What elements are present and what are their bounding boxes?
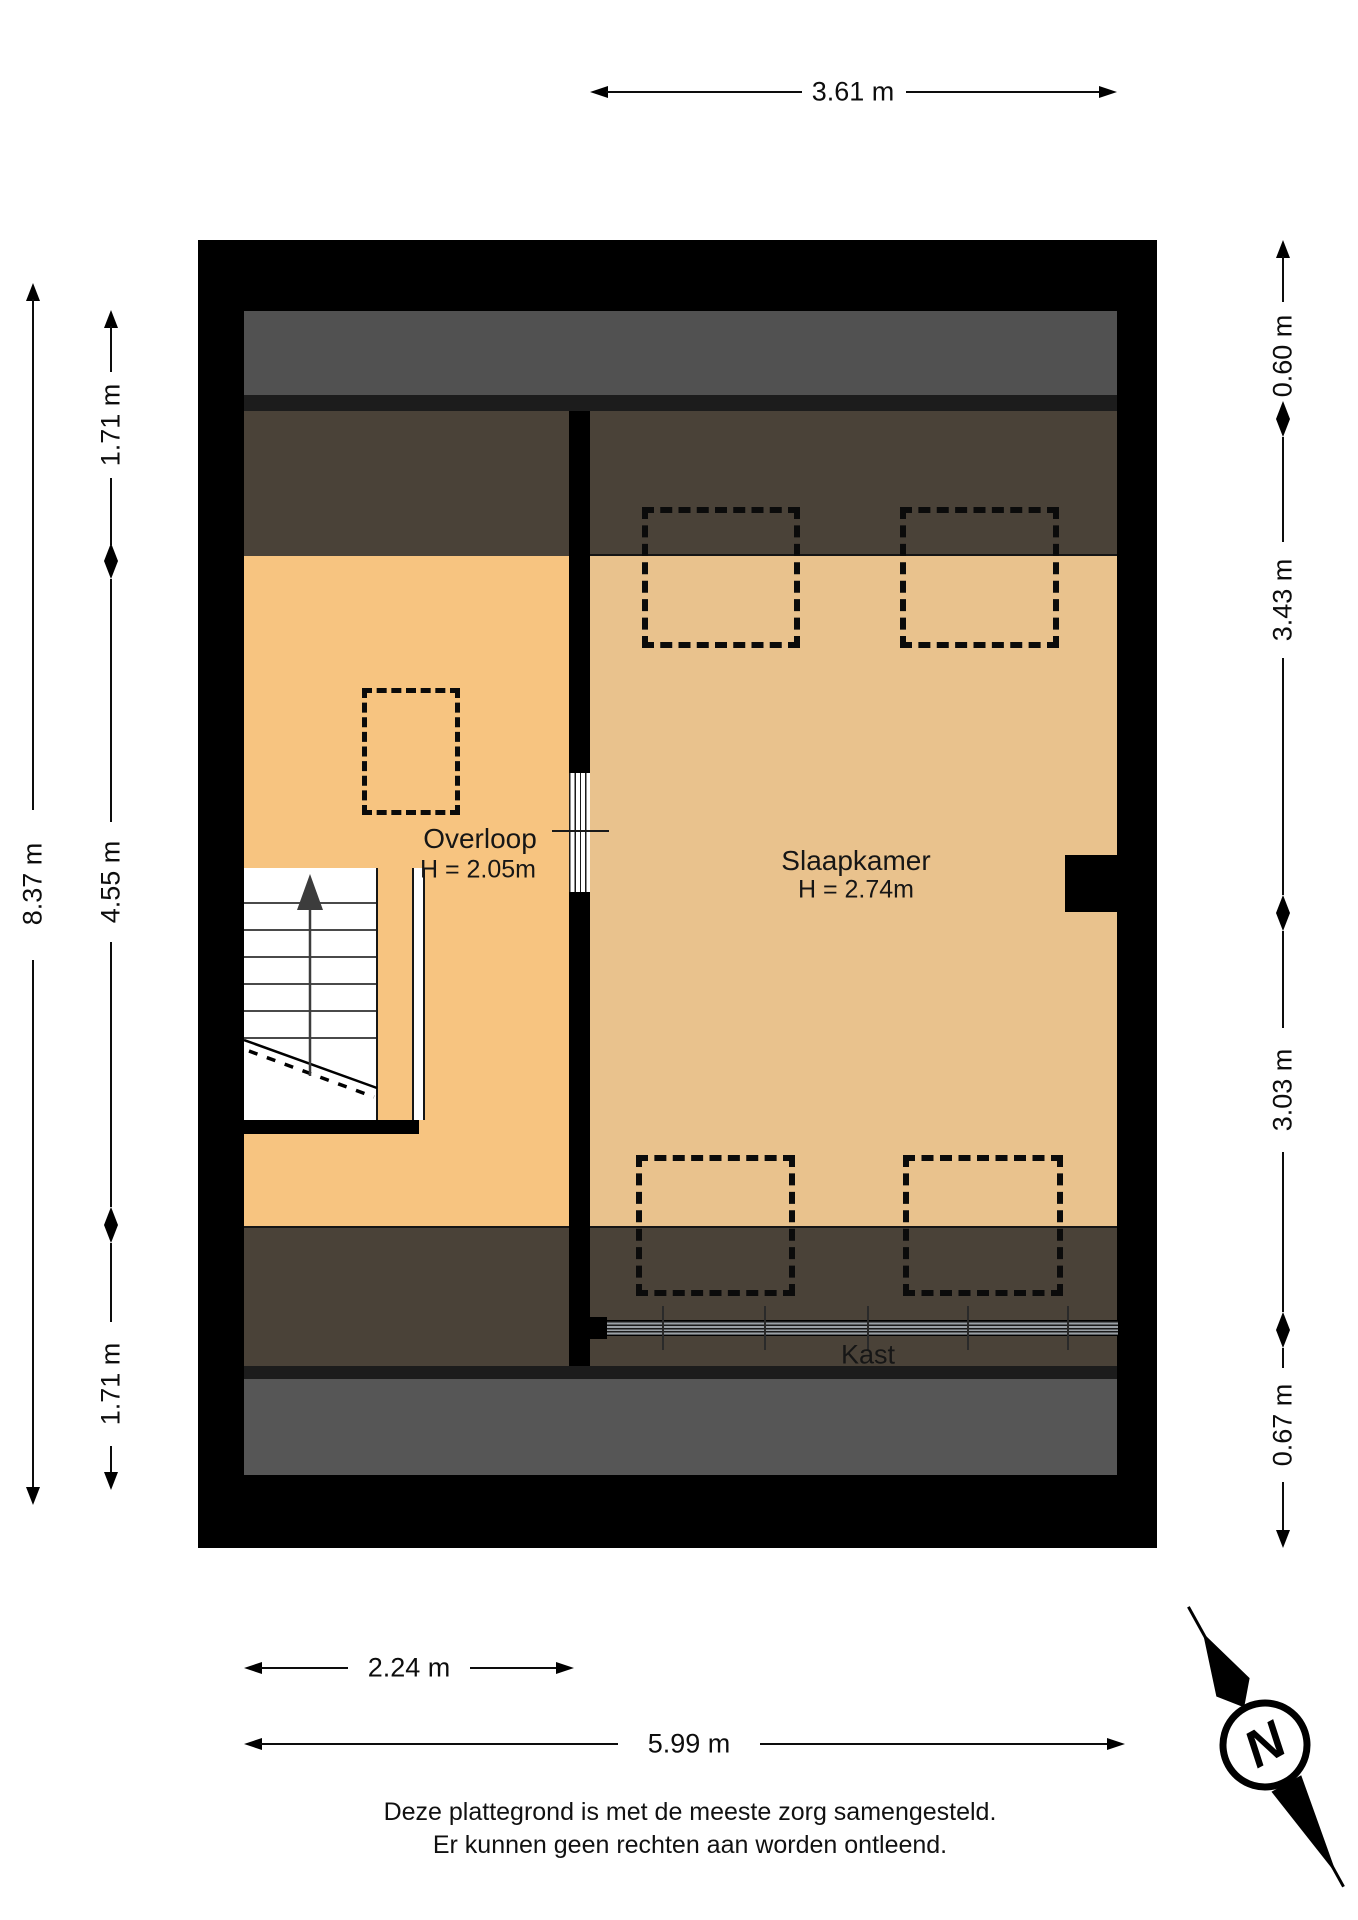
- divider-wall-lower: [569, 892, 590, 1366]
- dim-left-seg0-label: 1.71 m: [98, 384, 125, 467]
- kast-sliding-doors: [607, 1320, 1118, 1336]
- dim-right-seg3-label: 0.67 m: [1270, 1384, 1297, 1467]
- roof-window-bottom-left: [636, 1155, 795, 1296]
- roof-zone-bottom: [244, 1379, 1117, 1475]
- roof-window-top-left: [642, 507, 800, 648]
- dim-line-segment: [110, 326, 112, 372]
- dim-line-segment: [1282, 437, 1284, 542]
- dim-line-segment: [110, 579, 112, 822]
- roof-window-top-right: [900, 507, 1059, 648]
- floorplan-page: Overloop H = 2.05m Slaapkamer H = 2.74m …: [0, 0, 1358, 1920]
- sloped-ceiling-bottom-left: [244, 1228, 569, 1366]
- dim-arrowhead: [104, 561, 118, 579]
- dim-arrowhead: [1276, 1530, 1290, 1548]
- room-label-overloop: Overloop: [423, 825, 537, 853]
- dim-line-segment: [1282, 1482, 1284, 1530]
- chimney-duct: [1065, 855, 1117, 912]
- dim-right-seg2-label: 3.03 m: [1270, 1049, 1297, 1132]
- dim-bottom-overloop-label: 2.24 m: [368, 1655, 451, 1682]
- dim-line-segment: [1282, 658, 1284, 895]
- stair-bottom-edge: [244, 1120, 419, 1134]
- dim-line-segment: [470, 1667, 558, 1669]
- dim-arrowhead: [104, 543, 118, 561]
- dim-right-seg1-label: 3.43 m: [1270, 559, 1297, 642]
- dim-arrowhead: [1276, 913, 1290, 931]
- dim-line-segment: [110, 1446, 112, 1472]
- stair-direction-arrowhead: [297, 874, 323, 910]
- dim-line-segment: [1282, 1348, 1284, 1368]
- dim-line-segment: [606, 91, 802, 93]
- dim-arrowhead: [556, 1662, 574, 1674]
- dim-line-segment: [32, 960, 34, 1489]
- roof-window-overloop: [362, 688, 460, 815]
- kast-tick: [967, 1306, 969, 1350]
- dim-left-seg1-label: 4.55 m: [98, 841, 125, 924]
- room-height-slaapkamer: H = 2.74m: [798, 878, 914, 903]
- roof-zone-top: [244, 311, 1117, 395]
- staircase-drawing: [244, 868, 444, 1138]
- door-opening: [569, 773, 590, 892]
- kast-tick: [662, 1306, 664, 1350]
- dim-arrowhead: [1099, 86, 1117, 98]
- kast-tick: [1067, 1306, 1069, 1350]
- dim-bottom-total-label: 5.99 m: [648, 1731, 731, 1758]
- dim-arrowhead: [104, 1225, 118, 1243]
- dim-arrowhead: [104, 1207, 118, 1225]
- roof-window-bottom-right: [903, 1155, 1063, 1296]
- dim-line-segment: [1282, 1152, 1284, 1312]
- strip-top: [244, 395, 1117, 411]
- dim-line-segment: [260, 1667, 348, 1669]
- dim-arrowhead: [104, 1472, 118, 1490]
- stair-cut-dashes: [249, 1051, 374, 1097]
- room-height-overloop: H = 2.05m: [420, 858, 536, 883]
- room-label-slaapkamer: Slaapkamer: [781, 847, 930, 875]
- dim-right-seg0-label: 0.60 m: [1270, 315, 1297, 398]
- dim-line-segment: [110, 1243, 112, 1322]
- kast-tick: [764, 1306, 766, 1350]
- dim-line-segment: [260, 1743, 618, 1745]
- dim-arrowhead: [1276, 401, 1290, 419]
- dim-line-segment: [110, 942, 112, 1207]
- north-compass-icon: N: [1150, 1575, 1358, 1915]
- dim-arrowhead: [1276, 895, 1290, 913]
- door-swing-line: [552, 830, 609, 832]
- dim-left-total-label: 8.37 m: [20, 843, 47, 926]
- disclaimer-line-2: Er kunnen geen rechten aan worden ontlee…: [290, 1829, 1090, 1862]
- dim-line-segment: [1282, 256, 1284, 302]
- dim-arrowhead: [1107, 1738, 1125, 1750]
- dim-line-segment: [760, 1743, 1109, 1745]
- disclaimer-line-1: Deze plattegrond is met de meeste zorg s…: [290, 1796, 1090, 1829]
- dim-arrowhead: [1276, 1330, 1290, 1348]
- dim-line-segment: [1282, 931, 1284, 1028]
- divider-wall-upper: [569, 411, 590, 773]
- dim-top-label: 3.61 m: [812, 79, 895, 106]
- strip-bottom: [244, 1366, 1117, 1379]
- dim-arrowhead: [1276, 1312, 1290, 1330]
- kast-wall-tab: [590, 1317, 607, 1339]
- dim-arrowhead: [26, 1487, 40, 1505]
- dim-line-segment: [906, 91, 1101, 93]
- dim-left-seg2-label: 1.71 m: [98, 1343, 125, 1426]
- dim-arrowhead: [1276, 419, 1290, 437]
- sloped-ceiling-overloop: [244, 411, 569, 556]
- dim-line-segment: [32, 299, 34, 810]
- room-label-kast: Kast: [841, 1342, 895, 1369]
- disclaimer-text: Deze plattegrond is met de meeste zorg s…: [290, 1796, 1090, 1862]
- dim-line-segment: [110, 478, 112, 545]
